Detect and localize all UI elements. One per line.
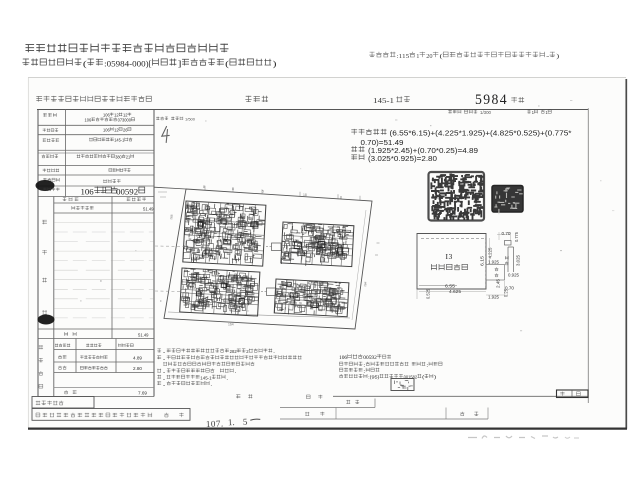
svg-text::05984-000)[: :05984-000)[ [104, 60, 152, 69]
svg-text:(: ( [440, 53, 443, 60]
svg-text:51.49: 51.49 [138, 332, 149, 337]
svg-text:00592: 00592 [116, 187, 138, 196]
svg-text:073000: 073000 [118, 118, 132, 123]
svg-text:18: 18 [303, 193, 307, 197]
svg-text:): ) [273, 60, 277, 69]
svg-text:0.525: 0.525 [426, 288, 431, 299]
svg-text:0.25: 0.25 [504, 288, 509, 297]
svg-text:145-1: 145-1 [200, 375, 212, 380]
svg-text:8: 8 [203, 185, 205, 189]
svg-text:12: 12 [114, 127, 119, 132]
svg-text:4.625: 4.625 [449, 289, 461, 294]
svg-text:.: . [162, 382, 167, 387]
svg-text:164: 164 [363, 281, 368, 287]
svg-text:0.925: 0.925 [508, 273, 520, 278]
svg-text:106: 106 [103, 113, 110, 118]
svg-text:145-1: 145-1 [114, 138, 125, 143]
svg-text:6.15: 6.15 [479, 256, 484, 266]
svg-text:00592: 00592 [363, 355, 377, 361]
svg-text:.: . [162, 375, 167, 380]
svg-text:106: 106 [339, 355, 348, 361]
svg-text:1/300: 1/300 [480, 110, 492, 115]
svg-text:(: ( [225, 60, 229, 69]
svg-text:(1.925*2.45)+(0.70*0.25)=4.89: (1.925*2.45)+(0.70*0.25)=4.89 [368, 148, 478, 155]
svg-text:.: . [273, 349, 275, 354]
svg-text:8: 8 [340, 196, 342, 200]
svg-text::: : [363, 368, 365, 373]
svg-text:7.69: 7.69 [138, 391, 147, 396]
svg-text:51.49: 51.49 [143, 206, 154, 211]
svg-text:145-1: 145-1 [373, 96, 394, 105]
svg-text::: : [426, 362, 428, 367]
svg-text:-: - [546, 53, 549, 60]
svg-text:106: 106 [103, 127, 110, 132]
svg-text:3.025: 3.025 [516, 254, 521, 266]
svg-text:(: ( [83, 60, 87, 69]
svg-text:106: 106 [81, 187, 94, 196]
svg-text::115: :115 [397, 53, 410, 60]
svg-text:.: . [162, 349, 167, 354]
svg-text:.: . [234, 369, 236, 374]
svg-text:2.80: 2.80 [133, 366, 142, 371]
svg-text:]: ] [178, 60, 182, 69]
svg-text:1.: 1. [228, 417, 235, 427]
svg-text:0.70: 0.70 [502, 231, 512, 236]
svg-text:1: 1 [416, 53, 419, 60]
svg-text:1/500: 1/500 [185, 117, 196, 122]
svg-text:(3.025*0.925)=2.80: (3.025*0.925)=2.80 [368, 156, 437, 163]
svg-text:2: 2 [246, 349, 249, 354]
svg-text:.: . [162, 369, 167, 374]
svg-text:4.89: 4.89 [133, 355, 142, 360]
svg-text:2.45: 2.45 [496, 278, 501, 288]
svg-text:(6.55*6.15)+(4.225*1.925)+(4.8: (6.55*6.15)+(4.225*1.925)+(4.825*0.525)+… [390, 131, 572, 138]
svg-text:5984: 5984 [475, 92, 508, 108]
svg-text:6.55: 6.55 [445, 284, 455, 289]
svg-text:380: 380 [115, 154, 122, 159]
svg-text:.: . [162, 356, 167, 361]
svg-text:5: 5 [243, 417, 248, 427]
svg-text:1.925: 1.925 [488, 295, 499, 300]
svg-text:0.70)=51.49: 0.70)=51.49 [361, 140, 404, 147]
svg-text:5: 5 [262, 190, 264, 194]
svg-text:): ) [556, 53, 559, 60]
svg-text:4.225: 4.225 [488, 247, 493, 258]
svg-text:1.925: 1.925 [488, 260, 499, 265]
svg-text:.: . [210, 382, 212, 387]
svg-text:164: 164 [228, 323, 234, 327]
svg-text:.: . [226, 375, 228, 380]
svg-text::: : [363, 362, 365, 367]
svg-text:I3: I3 [446, 252, 453, 261]
svg-text:106: 106 [85, 118, 92, 123]
svg-text:20: 20 [426, 53, 433, 60]
svg-text:282: 282 [230, 349, 237, 354]
svg-text:107.: 107. [206, 418, 224, 429]
svg-text:8: 8 [232, 187, 234, 191]
svg-text::(95): :(95) [368, 375, 380, 380]
svg-text:21: 21 [126, 154, 131, 159]
svg-text:0.775: 0.775 [514, 231, 519, 242]
svg-text:26: 26 [123, 127, 128, 132]
